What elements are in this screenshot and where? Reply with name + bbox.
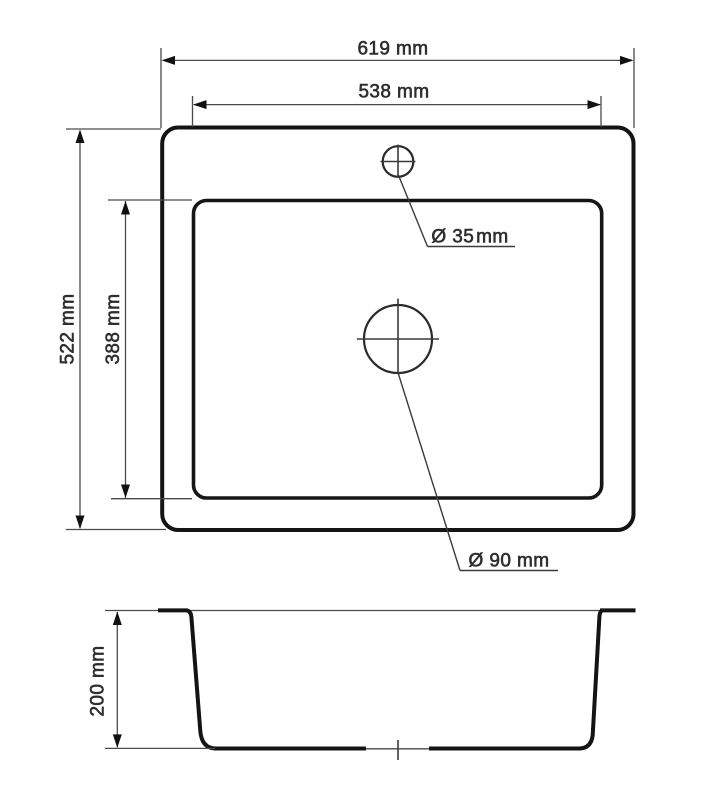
svg-text:Ø 90 mm: Ø 90 mm: [469, 551, 550, 572]
svg-text:200 mm: 200 mm: [88, 645, 109, 716]
svg-text:388 mm: 388 mm: [103, 293, 124, 364]
svg-text:538 mm: 538 mm: [358, 82, 429, 103]
svg-text:Ø 35 mm: Ø 35 mm: [431, 227, 508, 248]
svg-text:619 mm: 619 mm: [357, 39, 428, 60]
svg-text:522 mm: 522 mm: [58, 293, 79, 364]
